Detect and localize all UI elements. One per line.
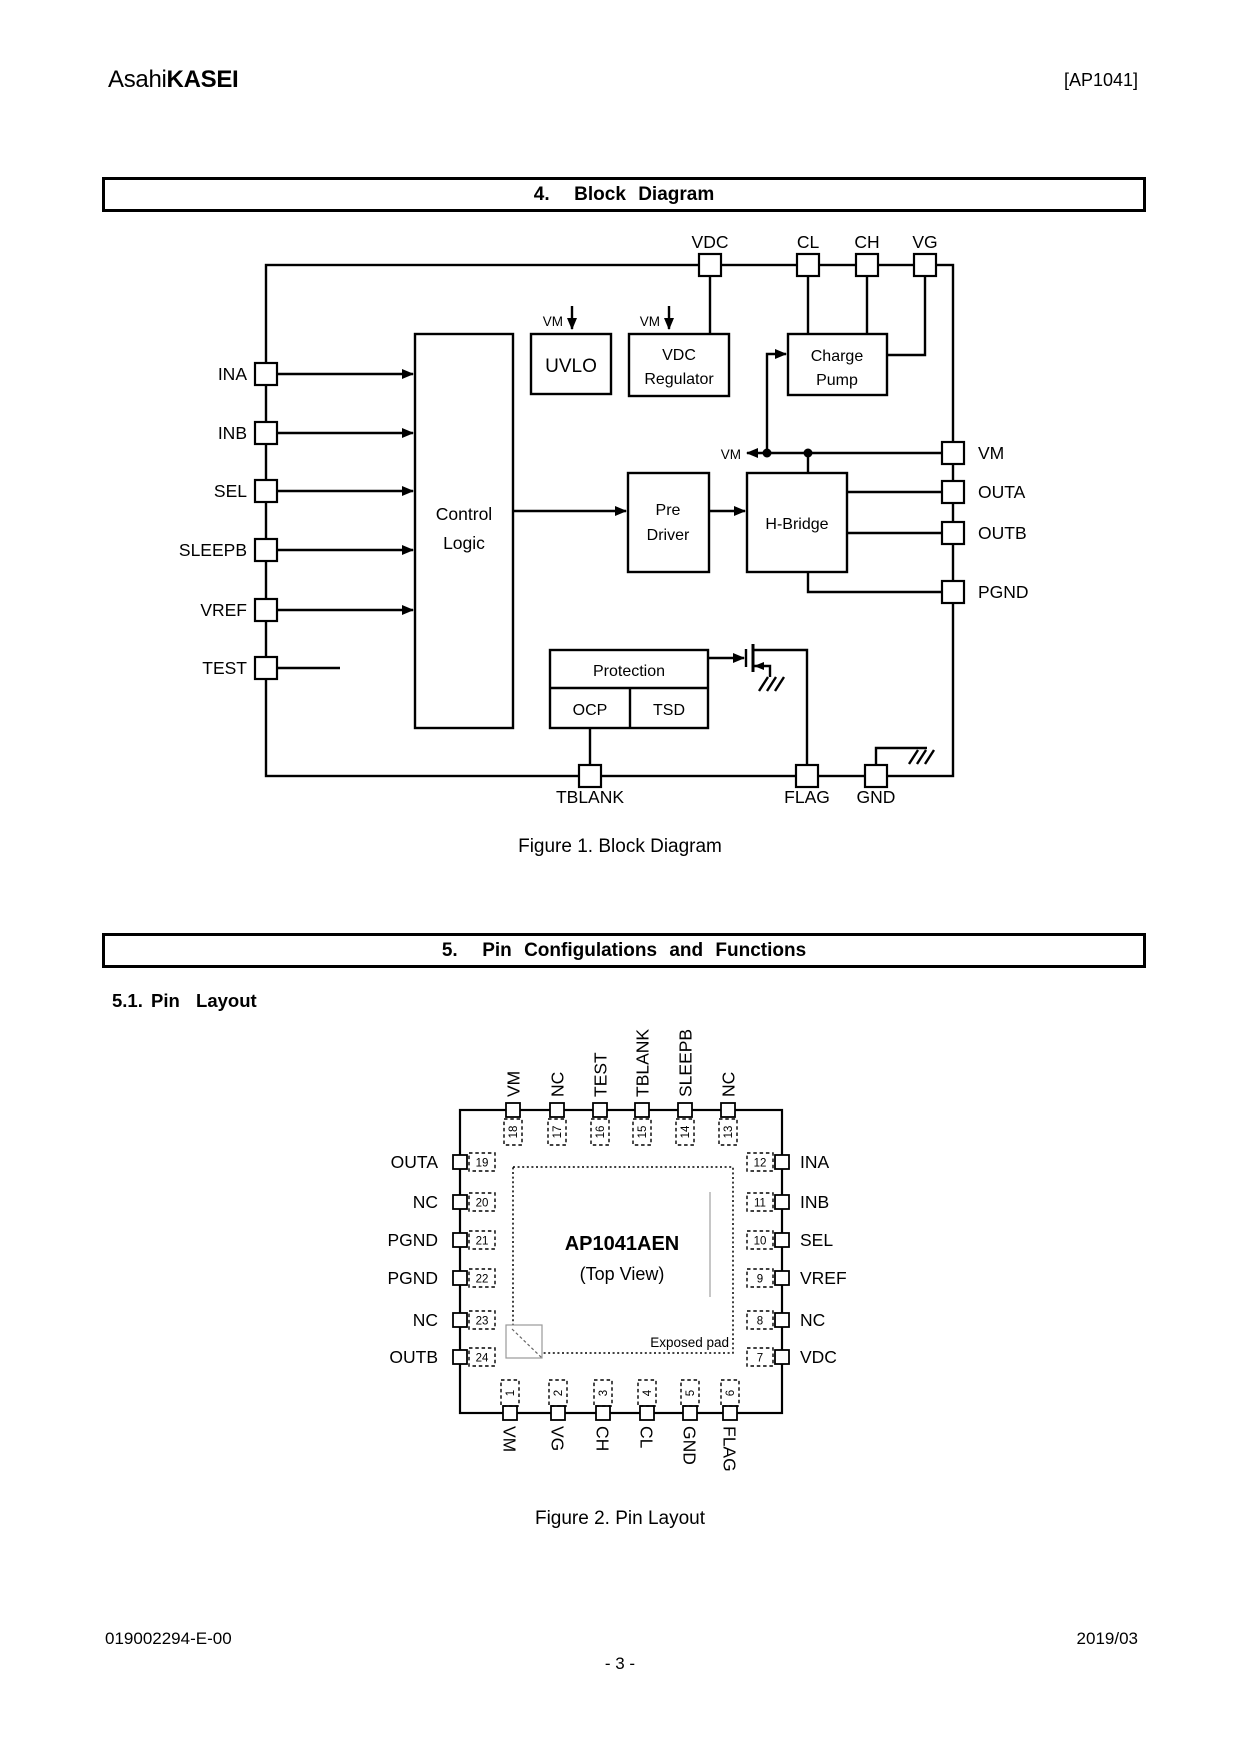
pin-label: OUTB — [978, 523, 1027, 543]
pin-name: VM — [500, 1426, 520, 1452]
pin-outa: OUTA — [942, 481, 1026, 503]
pin-label: VDC — [692, 232, 729, 252]
pin-vdc: VDC — [692, 232, 729, 276]
pin-name: VG — [548, 1426, 568, 1451]
pin-name: VREF — [800, 1268, 847, 1288]
pin-vm: VM — [942, 442, 1004, 464]
pin-label: CL — [797, 232, 820, 252]
pin-name: INA — [800, 1152, 830, 1172]
pin-number: 19 — [476, 1157, 489, 1169]
pin-number: 2 — [553, 1390, 565, 1396]
pin-name: SEL — [800, 1230, 833, 1250]
pin-gnd: GND — [857, 765, 896, 807]
pkg-pin-2: 2 VG — [548, 1380, 568, 1451]
block-label: Charge — [811, 348, 864, 365]
figure1-block-diagram: Control Logic UVLO VDC Regulator Charge … — [0, 230, 1240, 875]
pin-name: SLEEPB — [675, 1029, 695, 1097]
footer-page-number: - 3 - — [0, 1654, 1240, 1674]
pin-number: 13 — [723, 1126, 735, 1139]
block-h-bridge: H-Bridge — [747, 473, 847, 572]
figure2-pin-layout: AP1041AEN (Top View) Exposed pad 18 VM 1… — [0, 1015, 1240, 1545]
view-label: (Top View) — [580, 1264, 665, 1284]
pkg-pin-24: 24 OUTB — [389, 1347, 495, 1367]
vm-label: VM — [640, 314, 660, 329]
section-4-title: 4. Block Diagram — [102, 177, 1146, 212]
block-label: UVLO — [545, 356, 597, 377]
pin-label: TBLANK — [556, 787, 624, 807]
pin-label: VM — [978, 443, 1004, 463]
pkg-pin-12: 12 INA — [747, 1152, 830, 1172]
pin-name: INB — [800, 1192, 829, 1212]
ground-icon — [759, 677, 784, 691]
block-label: TSD — [653, 702, 685, 719]
pin-label: CH — [854, 232, 879, 252]
block-label: Pump — [816, 372, 858, 389]
pin-number: 20 — [476, 1197, 489, 1209]
pin-test: TEST — [202, 657, 277, 679]
pin-number: 23 — [476, 1315, 489, 1327]
pin-name: VM — [503, 1071, 523, 1097]
pkg-pin-17: 17 NC — [547, 1072, 567, 1145]
pin-number: 1 — [505, 1390, 517, 1396]
pin-number: 16 — [595, 1126, 607, 1139]
pkg-pin-8: 8 NC — [747, 1310, 825, 1330]
pin-outb: OUTB — [942, 522, 1027, 544]
pin-number: 6 — [725, 1390, 737, 1396]
pin-number: 18 — [508, 1126, 520, 1139]
block-label: Protection — [593, 663, 665, 680]
chip-name: AP1041AEN — [565, 1233, 680, 1255]
pkg-pin-16: 16 TEST — [590, 1052, 610, 1145]
pin-number: 12 — [754, 1157, 767, 1169]
vm-label: VM — [721, 447, 741, 462]
pin-number: 24 — [476, 1352, 489, 1364]
pin-sleepb: SLEEPB — [179, 539, 277, 561]
pkg-pin-1: 1 VM — [500, 1380, 520, 1452]
pin-name: OUTA — [391, 1152, 439, 1172]
pin-number: 5 — [685, 1390, 697, 1396]
block-pre-driver: Pre Driver — [628, 473, 709, 572]
pin-name: OUTB — [389, 1347, 438, 1367]
pkg-pin-23: 23 NC — [413, 1310, 495, 1330]
pin-vg: VG — [912, 232, 937, 276]
pin-number: 17 — [552, 1126, 564, 1139]
pin-name: VDC — [800, 1347, 837, 1367]
pin-number: 11 — [754, 1197, 766, 1209]
pin-name: NC — [413, 1310, 438, 1330]
pkg-pin-10: 10 SEL — [747, 1230, 833, 1250]
pin-number: 9 — [757, 1273, 763, 1285]
section-5-title: 5. Pin Configulations and Functions — [102, 933, 1146, 968]
pin-label: FLAG — [784, 787, 830, 807]
block-label: OCP — [573, 702, 608, 719]
ground-icon — [876, 748, 934, 765]
footer-date: 2019/03 — [1077, 1629, 1138, 1649]
pin-name: GND — [680, 1426, 700, 1465]
pin-label: SLEEPB — [179, 540, 247, 560]
pin-vref: VREF — [200, 599, 277, 621]
pin-name: PGND — [387, 1230, 438, 1250]
datasheet-page: AsahiKASEI [AP1041] 4. Block Diagram — [0, 0, 1240, 1754]
pkg-pin-21: 21 PGND — [387, 1230, 495, 1250]
pin-ch: CH — [854, 232, 879, 276]
block-label: H-Bridge — [765, 516, 828, 533]
figure1-caption: Figure 1. Block Diagram — [518, 836, 722, 857]
pkg-pin-22: 22 PGND — [387, 1268, 495, 1288]
block-uvlo: UVLO — [531, 334, 611, 394]
block-label: Pre — [656, 502, 681, 519]
pin-label: OUTA — [978, 482, 1026, 502]
pin-label: TEST — [202, 658, 247, 678]
pin-ina: INA — [218, 363, 277, 385]
exposed-pad-label: Exposed pad — [650, 1335, 729, 1350]
block-control-logic: Control Logic — [415, 334, 513, 728]
section-5-1-title: 5.1. Pin Layout — [112, 990, 257, 1012]
pin-label: INA — [218, 364, 248, 384]
pkg-pin-4: 4 CL — [637, 1380, 657, 1449]
pin-name: FLAG — [720, 1426, 740, 1472]
pin-pgnd: PGND — [942, 581, 1029, 603]
pin-label: GND — [857, 787, 896, 807]
pin-label: SEL — [214, 481, 247, 501]
pin-number: 15 — [637, 1126, 649, 1139]
pkg-pin-9: 9 VREF — [747, 1268, 847, 1288]
pkg-pin-11: 11 INB — [747, 1192, 829, 1212]
pin-name: CH — [593, 1426, 613, 1451]
pin-name: CL — [637, 1426, 657, 1449]
pin-number: 7 — [757, 1352, 763, 1364]
block-label: Regulator — [644, 371, 714, 388]
pin-number: 3 — [598, 1390, 610, 1396]
pkg-pin-7: 7 VDC — [747, 1347, 837, 1367]
pin-flag: FLAG — [784, 765, 830, 807]
pin-number: 14 — [680, 1125, 692, 1138]
block-label: VDC — [662, 347, 696, 364]
pkg-pin-13: 13 NC — [718, 1072, 738, 1145]
pin-number: 22 — [476, 1273, 489, 1285]
pkg-pin-19: 19 OUTA — [391, 1152, 495, 1172]
block-protection: Protection OCP TSD — [550, 650, 708, 728]
footer-doc-number: 019002294-E-00 — [105, 1629, 232, 1649]
pin-name: TBLANK — [632, 1029, 652, 1097]
pin-number: 21 — [476, 1235, 489, 1247]
pin-name: TEST — [590, 1052, 610, 1097]
flag-mosfet-icon — [746, 644, 807, 766]
block-vdc-regulator: VDC Regulator — [629, 334, 729, 396]
pin-sel: SEL — [214, 480, 277, 502]
document-id: [AP1041] — [1064, 70, 1138, 91]
exposed-pad-outline — [513, 1167, 733, 1353]
brand-logo: AsahiKASEI — [108, 66, 238, 94]
block-label: Logic — [443, 533, 485, 553]
pin-name: NC — [800, 1310, 825, 1330]
pin-number: 10 — [754, 1235, 767, 1247]
block-label: Control — [436, 504, 492, 524]
pkg-pin-3: 3 CH — [593, 1380, 613, 1451]
brand-logo-bold: KASEI — [167, 66, 239, 93]
pin-label: PGND — [978, 582, 1029, 602]
figure2-caption: Figure 2. Pin Layout — [535, 1508, 706, 1529]
pin-name: NC — [413, 1192, 438, 1212]
pin-number: 8 — [757, 1315, 763, 1327]
block-charge-pump: Charge Pump — [788, 334, 887, 395]
pin-name: NC — [547, 1072, 567, 1097]
brand-logo-light: Asahi — [108, 66, 167, 93]
pkg-pin-14: 14 SLEEPB — [675, 1029, 695, 1145]
pkg-pin-5: 5 GND — [680, 1380, 700, 1465]
pkg-pin-20: 20 NC — [413, 1192, 495, 1212]
pin-label: VREF — [200, 600, 247, 620]
pin-tblank: TBLANK — [556, 765, 624, 807]
pin-name: NC — [718, 1072, 738, 1097]
pin-cl: CL — [797, 232, 820, 276]
pin-number: 4 — [642, 1389, 654, 1396]
pin-label: INB — [218, 423, 247, 443]
pin-label: VG — [912, 232, 937, 252]
pin1-notch-icon — [506, 1325, 542, 1358]
pkg-pin-6: 6 FLAG — [720, 1380, 740, 1472]
pin-name: PGND — [387, 1268, 438, 1288]
pin-inb: INB — [218, 422, 277, 444]
vm-label: VM — [543, 314, 563, 329]
block-label: Driver — [647, 527, 690, 544]
pkg-pin-18: 18 VM — [503, 1071, 523, 1145]
pkg-pin-15: 15 TBLANK — [632, 1029, 652, 1145]
